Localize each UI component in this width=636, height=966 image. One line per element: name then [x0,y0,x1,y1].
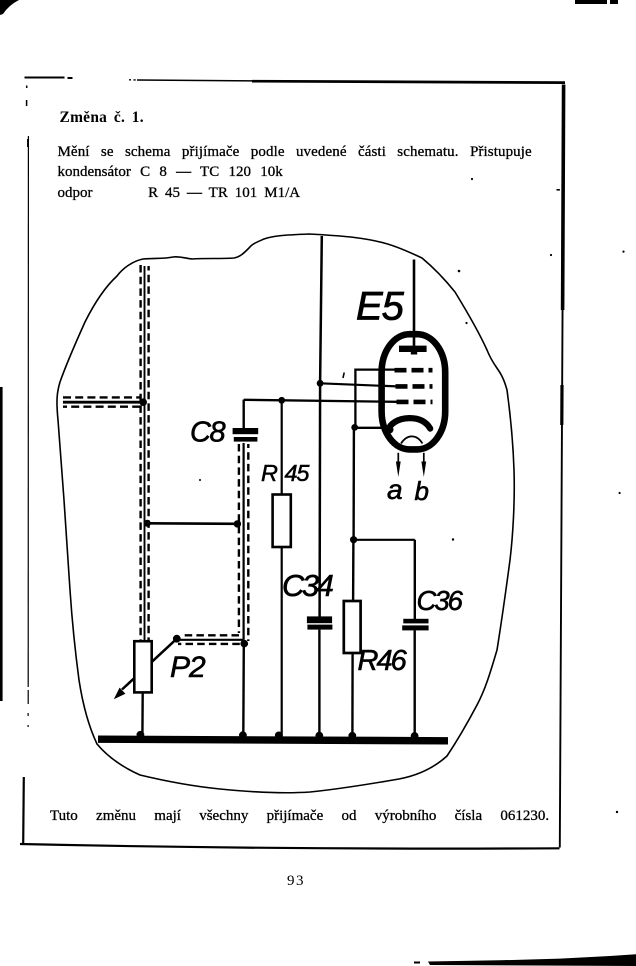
svg-text:C36: C36 [417,585,464,616]
svg-text:b: b [415,476,429,506]
svg-text:C34: C34 [282,568,334,603]
svg-text:45: 45 [285,460,311,486]
svg-text:a: a [387,474,403,505]
svg-text:E5: E5 [356,285,405,329]
svg-text:R: R [261,460,278,486]
svg-text:C8: C8 [190,417,225,449]
svg-text:P2: P2 [170,651,206,684]
svg-text:R46: R46 [358,645,408,677]
